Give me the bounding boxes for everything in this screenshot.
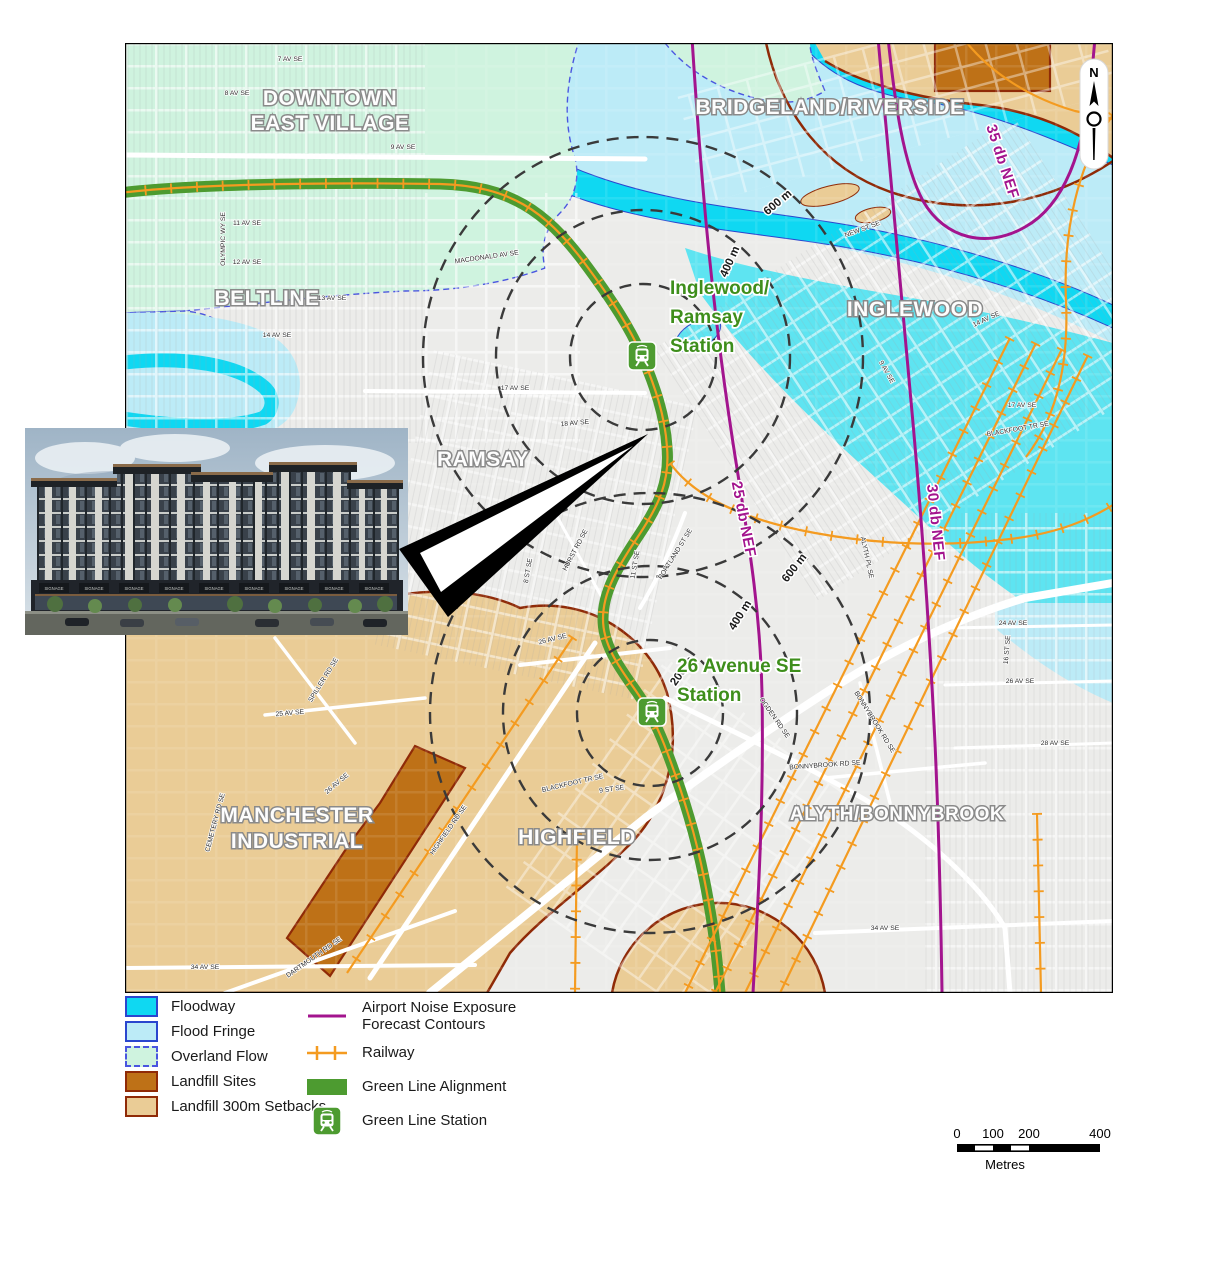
neighborhood-label: BRIDGELAND/RIVERSIDE [695,96,964,119]
street-label: 28 AV SE [1041,740,1070,747]
scale-bar-segment [1011,1146,1029,1151]
neighborhood-label: RAMSAY [437,448,529,471]
legend-item-station: Green Line Station [305,1106,516,1136]
street-label: 7 AV SE [278,56,303,63]
neighborhood-label: INGLEWOOD [847,298,983,321]
street-label: 11 AV SE [233,220,262,227]
north-arrow: N [1080,59,1108,169]
legend-label: Green Line Station [362,1112,487,1129]
storefront-sign-text: SIGNAGE [44,586,63,591]
street-label: 24 AV SE [999,620,1028,627]
station-label: Station [677,685,741,706]
storefront-sign-text: SIGNAGE [164,586,183,591]
station-label: 26 Avenue SE [677,656,801,677]
storefront-sign-text: SIGNAGE [204,586,223,591]
street-label: 17 AV SE [1008,402,1037,409]
street-label: 9 AV SE [391,144,416,151]
greenline-symbol [305,1072,349,1102]
scale-tick-label: 0 [953,1126,960,1141]
floodway-swatch [125,996,158,1017]
scale-unit-label: Metres [985,1157,1025,1172]
railway-symbol [305,1038,349,1068]
legend-label: Railway [362,1044,415,1061]
neighborhood-label: INDUSTRIAL [231,830,363,853]
scale-tick-label: 400 [1089,1126,1111,1141]
legend-label: Overland Flow [171,1048,268,1065]
north-letter: N [1089,65,1098,80]
scale-bar-segment [975,1146,993,1151]
neighborhood-label: DOWNTOWN [263,87,397,110]
legend-label: Floodway [171,998,235,1015]
green-line-station-icon [638,698,666,726]
legend-area-types: FloodwayFlood FringeOverland FlowLandfil… [125,996,326,1121]
neighborhood-label: MANCHESTER [220,804,373,827]
station-label: Ramsay [670,307,743,328]
legend-item-nef-line: Airport Noise ExposureForecast Contours [305,999,516,1034]
development-rendering-photo: SIGNAGESIGNAGESIGNAGESIGNAGESIGNAGESIGNA… [25,428,408,635]
street-label: 14 AV SE [263,332,292,339]
legend-label: Landfill 300m Setbacks [171,1098,326,1115]
storefront-sign-text: SIGNAGE [364,586,383,591]
planning-map-page: 7 AV SE8 AV SE9 AV SE11 AV SEOLYMPIC WY … [0,0,1221,1267]
legend-item-setback: Landfill 300m Setbacks [125,1096,326,1117]
station-label: Station [670,336,734,357]
setback-swatch [125,1096,158,1117]
storefront-sign-text: SIGNAGE [84,586,103,591]
legend-item-landfill: Landfill Sites [125,1071,326,1092]
green-line-station-icon [628,342,656,370]
station-symbol [305,1106,349,1136]
neighborhood-label: EAST VILLAGE [251,112,410,135]
street-label: 12 AV SE [233,259,262,266]
scale-bar: 0100200400Metres [953,1126,1110,1172]
street-label: 34 AV SE [871,925,900,932]
legend-item-greenline: Green Line Alignment [305,1072,516,1102]
street-label: OLYMPIC WY SE [220,212,227,266]
street-label: 8 AV SE [225,90,250,97]
legend-item-railway: Railway [305,1038,516,1068]
street-label: 17 AV SE [501,385,530,392]
building-rendering: SIGNAGESIGNAGESIGNAGESIGNAGESIGNAGESIGNA… [25,428,408,635]
legend-label: Flood Fringe [171,1023,255,1040]
storefront-sign-text: SIGNAGE [244,586,263,591]
legend-item-overland: Overland Flow [125,1046,326,1067]
nef-line-symbol [305,1001,349,1031]
legend-label: Green Line Alignment [362,1078,506,1095]
street-label: 34 AV SE [191,964,220,971]
legend-label: Airport Noise ExposureForecast Contours [362,999,516,1034]
scale-tick-label: 100 [982,1126,1004,1141]
neighborhood-label: BELTLINE [214,287,319,310]
station-label: Inglewood/ [670,278,770,299]
legend-label: Landfill Sites [171,1073,256,1090]
legend-line-types: Airport Noise ExposureForecast ContoursR… [305,999,516,1140]
street-label: 13 AV SE [318,295,347,302]
scale-tick-label: 200 [1018,1126,1040,1141]
legend-item-floodway: Floodway [125,996,326,1017]
storefront-sign-text: SIGNAGE [324,586,343,591]
storefront-sign-text: SIGNAGE [124,586,143,591]
street-label: 26 AV SE [1006,678,1035,685]
storefront-sign-text: SIGNAGE [284,586,303,591]
overland-swatch [125,1046,158,1067]
neighborhood-label: HIGHFIELD [518,826,636,849]
fringe-swatch [125,1021,158,1042]
neighborhood-label: ALYTH/BONNYBROOK [790,804,1004,825]
landfill-swatch [125,1071,158,1092]
storefront-signs: SIGNAGESIGNAGESIGNAGESIGNAGESIGNAGESIGNA… [39,583,389,593]
legend-item-fringe: Flood Fringe [125,1021,326,1042]
